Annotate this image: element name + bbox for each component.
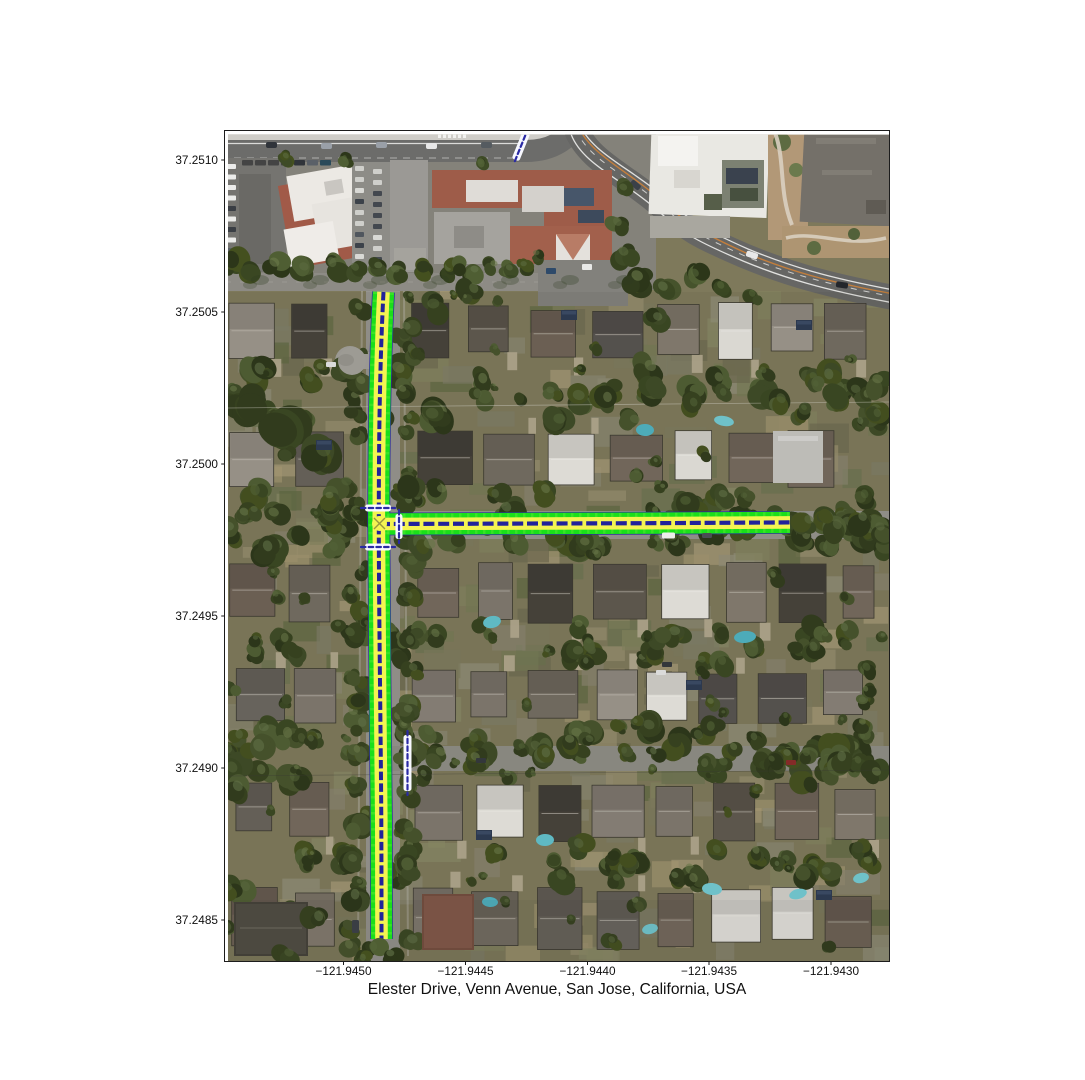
svg-text:37.2485: 37.2485: [175, 913, 218, 927]
svg-text:37.2490: 37.2490: [175, 761, 218, 775]
svg-text:−121.9445: −121.9445: [437, 964, 494, 978]
svg-text:−121.9440: −121.9440: [559, 964, 616, 978]
svg-text:−121.9450: −121.9450: [315, 964, 372, 978]
svg-text:37.2500: 37.2500: [175, 457, 218, 471]
svg-text:Elester Drive, Venn Avenue, Sa: Elester Drive, Venn Avenue, San Jose, Ca…: [368, 981, 747, 998]
svg-text:37.2495: 37.2495: [175, 609, 218, 623]
svg-text:−121.9435: −121.9435: [681, 964, 738, 978]
svg-text:37.2505: 37.2505: [175, 305, 218, 319]
svg-text:37.2510: 37.2510: [175, 153, 218, 167]
svg-text:−121.9430: −121.9430: [803, 964, 860, 978]
